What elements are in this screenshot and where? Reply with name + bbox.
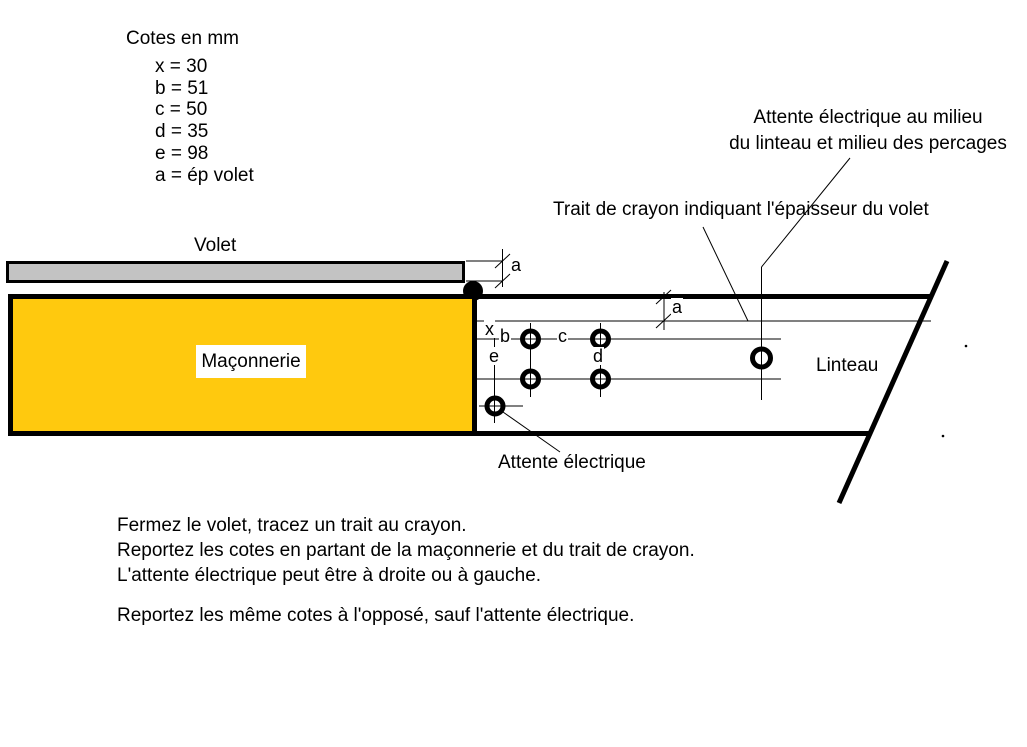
dim-label-a-volet: a <box>510 256 522 274</box>
technical-diagram-page: Cotes en mm x = 30 b = 51 c = 50 d = 35 … <box>0 0 1027 747</box>
instruction-line-4: Reportez les même cotes à l'opposé, sauf… <box>117 603 634 628</box>
annotation-attente-electrique: Attente électrique <box>498 452 646 474</box>
legend-item-b: b = 51 <box>155 78 254 100</box>
legend-item-a: a = ép volet <box>155 165 254 187</box>
instruction-line-3: L'attente électrique peut être à droite … <box>117 563 695 588</box>
annotation-trait-crayon: Trait de crayon indiquant l'épaisseur du… <box>553 199 929 221</box>
dim-label-e: e <box>488 347 500 365</box>
linteau-label: Linteau <box>816 355 878 377</box>
maconnerie-label: Maçonnerie <box>196 345 306 378</box>
legend-title: Cotes en mm <box>126 28 239 50</box>
legend-item-c: c = 50 <box>155 99 254 121</box>
annotation-attente-milieu: Attente électrique au milieu du linteau … <box>722 105 1014 157</box>
annotation-attente-milieu-line2: du linteau et milieu des percages <box>722 131 1014 157</box>
maconnerie-label-text: Maçonnerie <box>201 351 300 373</box>
legend-list: x = 30 b = 51 c = 50 d = 35 e = 98 a = é… <box>155 56 254 186</box>
dim-label-x: x <box>484 320 495 338</box>
dim-label-d: d <box>592 347 604 365</box>
stray-dot-1 <box>965 345 968 348</box>
legend-item-x: x = 30 <box>155 56 254 78</box>
dim-label-c: c <box>557 327 568 345</box>
leader-trait-crayon <box>703 227 748 321</box>
instructions-paragraph-1: Fermez le volet, tracez un trait au cray… <box>117 513 695 588</box>
instruction-line-2: Reportez les cotes en partant de la maço… <box>117 538 695 563</box>
legend-item-e: e = 98 <box>155 143 254 165</box>
volet-label: Volet <box>194 235 236 257</box>
volet-bar <box>8 263 464 282</box>
stray-dot-2 <box>942 435 945 438</box>
instructions-paragraph-2: Reportez les même cotes à l'opposé, sauf… <box>117 603 634 628</box>
legend-item-d: d = 35 <box>155 121 254 143</box>
dim-label-a-linteau: a <box>671 298 683 316</box>
annotation-attente-milieu-line1: Attente électrique au milieu <box>722 105 1014 131</box>
dim-label-b: b <box>499 327 511 345</box>
instruction-line-1: Fermez le volet, tracez un trait au cray… <box>117 513 695 538</box>
